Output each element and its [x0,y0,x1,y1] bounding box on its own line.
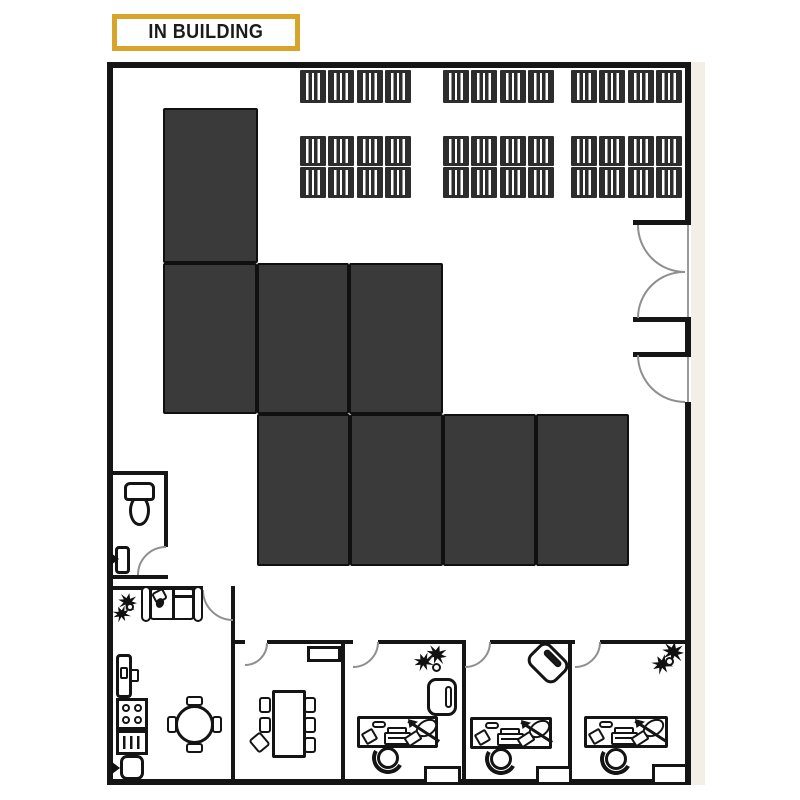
meeting-office1-partition [341,640,345,779]
door-jamb-wall [633,317,687,322]
door-jamb-wall [633,352,687,357]
rack-group [300,136,411,166]
stove-icon [116,698,148,730]
bathroom-top-wall [113,471,168,475]
wall-recess [652,764,688,782]
blocked-zone [163,108,258,263]
vent-drawer-icon [116,730,148,755]
conference-table-icon [272,690,306,758]
armchair-icon [524,639,572,687]
burner-icon [134,704,142,712]
fridge-side-unit [130,669,139,682]
chair-icon [304,717,316,733]
lounge-kitchen-right-wall [231,586,235,779]
rack-group [571,70,682,103]
chair-icon [304,737,316,753]
floorplan-page: IN BUILDING [0,0,800,800]
burner-icon [122,704,130,712]
chair-icon [167,716,177,733]
plant-pot-icon [665,657,674,666]
desk-item [599,721,613,728]
desk-item [474,729,492,747]
rack-group [300,167,411,198]
chair-icon [186,696,203,706]
banner-label: IN BUILDING [149,21,264,44]
chair-icon [259,697,271,713]
bottom-rooms-top-wall [378,640,465,644]
desk-item [485,722,499,729]
vent-slats [123,736,141,749]
blocked-zone [350,414,443,566]
rack-group [443,70,554,103]
door-threshold [687,357,689,402]
kitchen-sink-icon [120,755,144,780]
desk-item [372,721,386,728]
sofa-back-line [174,595,192,598]
desk-item [588,728,606,746]
rack-group [300,70,411,103]
plant-pot-icon [126,603,134,611]
desk-chair-icon [375,745,401,771]
burner-icon [122,716,130,724]
blocked-zone [257,414,350,566]
desk-item [361,728,379,746]
chair-icon [304,697,316,713]
chair-icon [259,717,271,733]
sofa-armrest [141,586,151,622]
door-jamb-wall [633,220,687,225]
plant-pot-icon [432,663,441,672]
armchair-back [445,686,452,708]
faucet-icon [111,553,119,565]
building-outline [107,62,691,785]
sofa-armrest [193,586,203,622]
armchair-icon [427,678,457,716]
rack-group [443,167,554,198]
in-building-banner: IN BUILDING [112,14,300,51]
outside-shadow [691,62,705,785]
armchair-back [542,648,563,669]
fridge-handle [120,667,128,679]
blocked-zone [257,263,349,414]
rack-group [571,136,682,166]
round-table-icon [175,705,214,744]
door-threshold [687,225,689,317]
credenza-icon [307,646,341,662]
chair-icon [186,743,203,753]
rack-group [571,167,682,198]
office2-office3-partition [568,640,572,779]
wall-recess [424,766,461,782]
blocked-zone [443,414,536,566]
bottom-rooms-top-wall [490,640,575,644]
office-desk [584,716,668,748]
office-desk [357,716,438,748]
blocked-zone [349,263,443,414]
bottom-rooms-top-wall [600,640,685,644]
sofa-icon [141,586,203,622]
bathroom-bottom-wall [113,575,168,579]
office1-office2-partition [462,640,466,779]
toilet-tank-icon [124,482,155,501]
chair-pulled-out-icon [248,731,270,754]
bathroom-right-wall [164,471,168,547]
desk-chair-icon [603,746,629,772]
bottom-rooms-top-wall [231,640,245,644]
desk-chair-icon [488,746,514,772]
blocked-zone [163,263,257,414]
chair-icon [212,716,222,733]
burner-icon [134,716,142,724]
office-desk [470,717,552,749]
wall-recess [536,766,572,782]
rack-group [443,136,554,166]
blocked-zone [536,414,629,566]
faucet-icon [112,762,120,774]
